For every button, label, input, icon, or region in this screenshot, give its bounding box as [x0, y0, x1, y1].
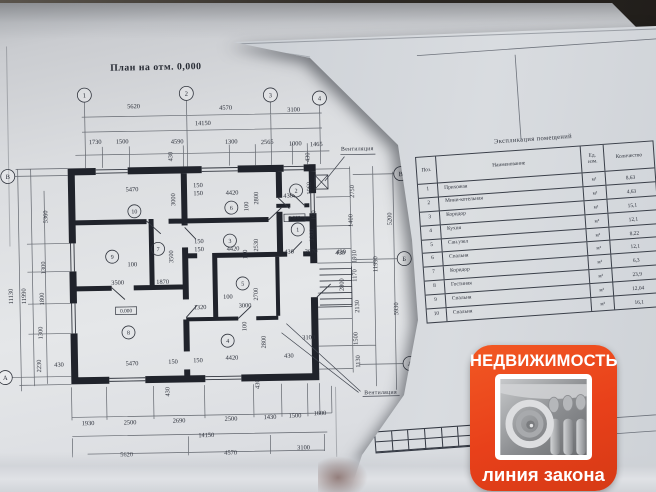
- explication-cell: м²: [583, 172, 607, 186]
- explication-table: Поз. Наименование Ед. изм. Количество: [415, 140, 656, 323]
- photo-of-floor-plan-document: План на отм. 0,000 5620457: [0, 0, 656, 492]
- explication-cell: м²: [590, 283, 614, 297]
- explication-cell: м²: [584, 186, 608, 200]
- explication-cell: 2: [419, 197, 440, 211]
- watermark-logo: НЕДВИЖИМОСТЬ: [470, 345, 617, 491]
- explication-cell: 6: [423, 253, 444, 267]
- explication-cell: м²: [585, 213, 609, 227]
- explication-cell: 16,1: [614, 293, 656, 309]
- explication-cell: м²: [589, 269, 613, 283]
- explication-cell: м²: [584, 199, 608, 213]
- ionic-column-icon: [495, 374, 592, 460]
- photo-smudge: [318, 456, 368, 492]
- logo-subtitle: линия закона: [470, 464, 617, 486]
- explication-cell: 3: [420, 211, 441, 225]
- explication-cell: 7: [424, 267, 445, 281]
- explication-cell: 9: [426, 294, 447, 308]
- col-header-pos: Поз.: [416, 157, 438, 184]
- col-header-qty: Количество: [604, 141, 655, 170]
- logo-title: НЕДВИЖИМОСТЬ: [470, 352, 617, 371]
- explication-cell: 10: [427, 308, 448, 322]
- col-header-unit: Ед. изм.: [581, 145, 606, 173]
- explication-cell: 1: [418, 183, 439, 197]
- explication-cell: м²: [588, 255, 612, 269]
- explication-cell: 8: [425, 280, 446, 294]
- explication-cell: 4: [421, 225, 442, 239]
- explication-cell: м²: [586, 227, 610, 241]
- explication-cell: м²: [591, 296, 615, 310]
- explication-cell: м²: [587, 241, 611, 255]
- explication-cell: 5: [422, 239, 443, 253]
